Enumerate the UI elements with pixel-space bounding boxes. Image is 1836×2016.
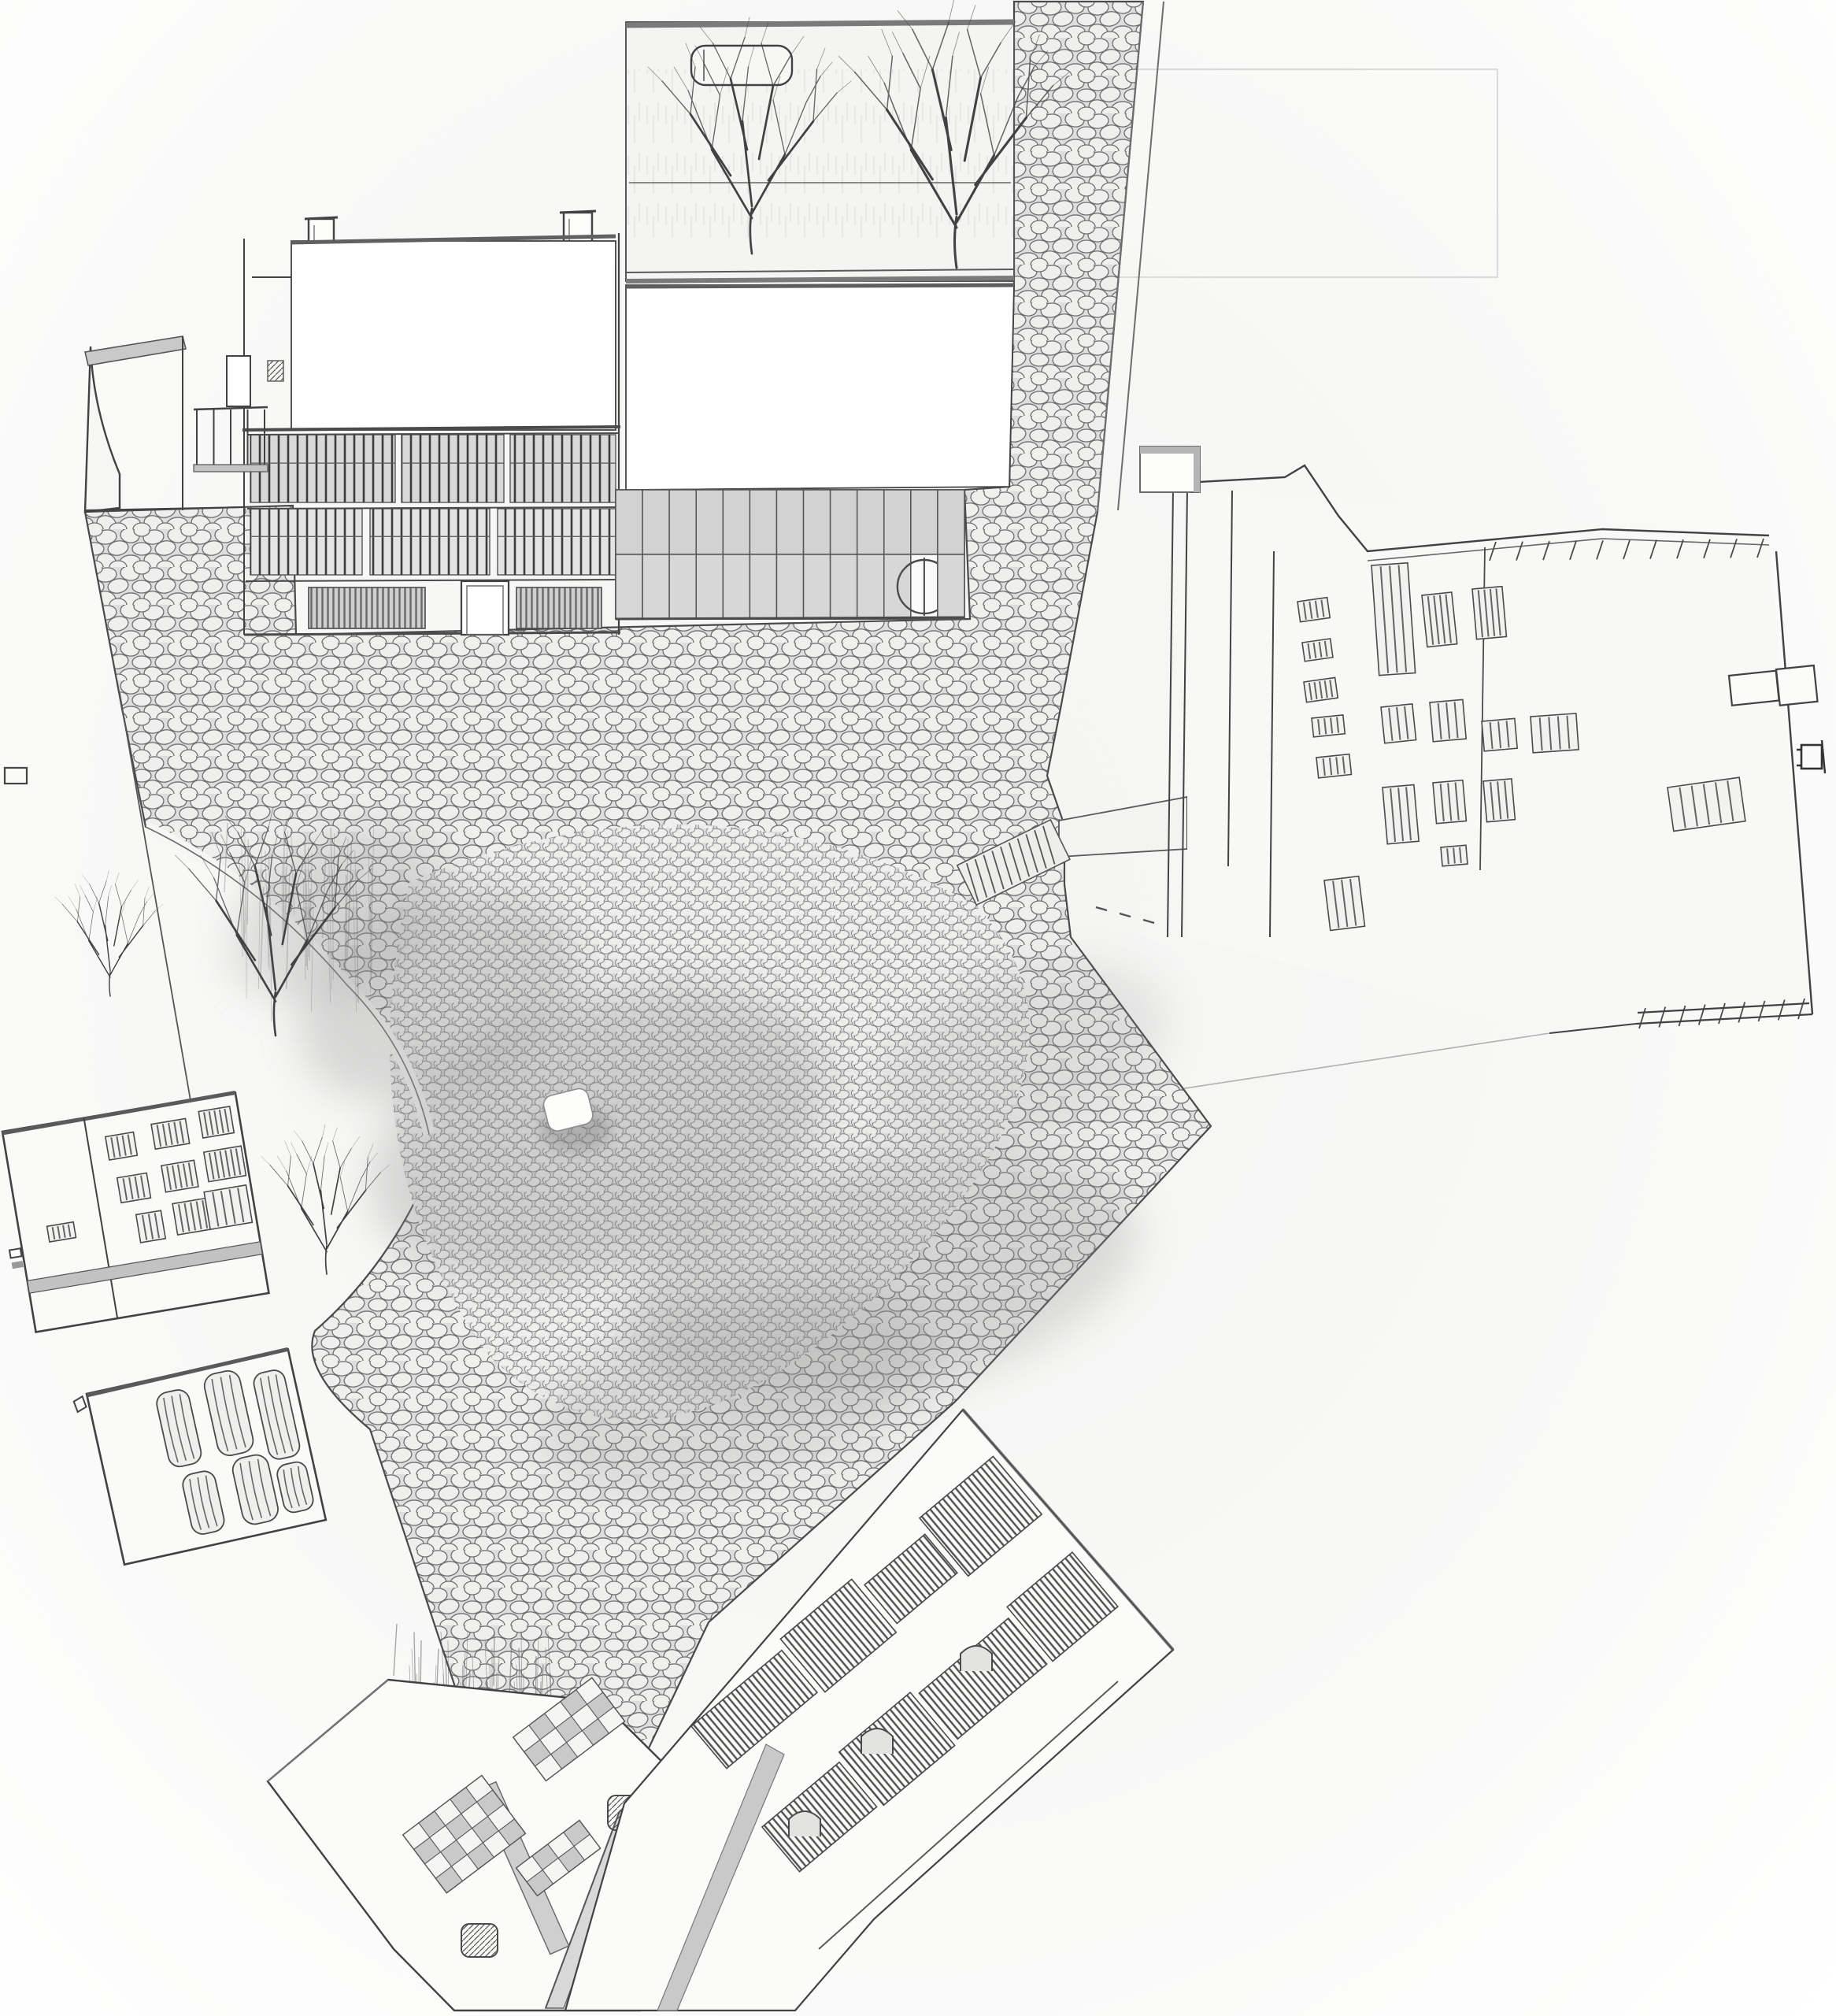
window-mullions xyxy=(370,509,490,575)
furniture-item xyxy=(1297,598,1330,622)
site-plan-svg: Village square site plan - aerial pencil… xyxy=(0,0,1836,2016)
bare-tree xyxy=(55,870,164,996)
porch-outer xyxy=(1776,665,1818,706)
porch-inner xyxy=(1729,671,1779,706)
furniture-outline xyxy=(1297,598,1330,622)
wall-line xyxy=(1182,488,1187,937)
furniture-outline xyxy=(1472,587,1506,639)
furniture-outline xyxy=(1531,713,1579,753)
glazed-hall-north: hall with white roof and glazed facade w… xyxy=(616,285,1014,619)
furniture-item xyxy=(1381,704,1416,743)
scribble-stroke xyxy=(309,889,310,961)
furniture-item xyxy=(105,1132,137,1161)
room-plan-group xyxy=(0,1092,268,1334)
furniture-outline xyxy=(117,1173,151,1203)
furniture-item xyxy=(1304,677,1338,702)
glass-panel xyxy=(831,490,857,554)
room-plan-upper-left: furnished room plan (upper left) xyxy=(0,1092,268,1334)
furniture-item xyxy=(1324,876,1364,931)
hall-roof-edge xyxy=(626,285,1014,287)
glass-panel xyxy=(938,490,964,554)
glass-panel xyxy=(696,554,723,619)
furniture-outline xyxy=(204,1185,252,1229)
window-mullions xyxy=(402,435,504,502)
glass-panel xyxy=(776,490,803,554)
annex-roof xyxy=(85,336,186,365)
furniture-item xyxy=(1531,713,1579,753)
window-mullions xyxy=(250,435,395,502)
garden-bottom-wall xyxy=(626,278,1014,281)
glass-panel xyxy=(857,554,884,619)
furniture-item xyxy=(136,1210,166,1243)
storage-hook xyxy=(73,1396,87,1413)
scribble-stroke xyxy=(494,1632,494,1686)
furniture-item xyxy=(204,1146,246,1181)
facade-base xyxy=(616,617,964,619)
entry-door xyxy=(461,581,509,635)
balcony-rail xyxy=(194,407,268,409)
glass-panel xyxy=(642,490,669,554)
furniture-outline xyxy=(105,1132,137,1161)
furniture-item xyxy=(198,1106,234,1138)
furniture-item xyxy=(1668,777,1745,831)
outdoor-chair xyxy=(1801,745,1822,769)
furniture-item xyxy=(1441,845,1468,866)
barn-arch-door xyxy=(961,1646,992,1671)
door-latch xyxy=(9,1248,21,1258)
furniture-item xyxy=(1430,699,1466,741)
edge-latch xyxy=(5,768,27,784)
glass-panel xyxy=(723,490,750,554)
scribble-stroke xyxy=(283,825,284,934)
furnished-hall-plan-east: furnished hall floor plan with hatched w… xyxy=(1140,447,1825,1033)
glass-panel xyxy=(938,554,964,619)
garden-top-wall xyxy=(626,22,1014,25)
furniture-item xyxy=(1312,715,1345,737)
annex-vent xyxy=(268,361,283,381)
furniture-item xyxy=(1302,639,1333,661)
furniture-item xyxy=(204,1185,252,1229)
barn-arch-door xyxy=(789,1811,820,1836)
glass-panel xyxy=(642,554,669,619)
glass-panel xyxy=(669,554,696,619)
paving-mark xyxy=(1120,913,1131,917)
furniture-outline xyxy=(1312,715,1345,737)
chimney-cap xyxy=(305,217,338,219)
glass-panel xyxy=(831,554,857,619)
storage-plan-lower-left: storage plan with elongated objects (low… xyxy=(72,1349,325,1567)
furniture-item xyxy=(1371,563,1416,676)
hall-roof xyxy=(626,285,1014,490)
paving-mark xyxy=(1143,920,1154,923)
chimney-cap xyxy=(560,211,596,213)
furniture-item xyxy=(161,1160,198,1191)
furniture-item xyxy=(1482,718,1517,751)
ground-window-grille xyxy=(309,587,425,628)
hall-floor xyxy=(1187,490,1812,1033)
stone-blob xyxy=(461,1924,498,1957)
glass-panel xyxy=(884,490,911,554)
furniture-outline xyxy=(1302,639,1333,661)
paving-mark xyxy=(1096,907,1107,910)
annex-wall xyxy=(85,346,120,512)
furniture-item xyxy=(1383,785,1419,844)
furniture-item xyxy=(1433,780,1466,824)
storage-plan-group xyxy=(72,1349,325,1567)
scribble-stroke xyxy=(394,1624,397,1676)
barn-arch-door xyxy=(861,1729,893,1754)
kiosk-roof-edge-side xyxy=(1194,447,1200,492)
roof-plane xyxy=(291,241,616,430)
ground-window-grille xyxy=(516,587,602,628)
glass-panel xyxy=(616,554,642,619)
door-latch-2 xyxy=(12,1261,24,1269)
window-mullions xyxy=(250,509,362,575)
window-mullions xyxy=(510,435,616,502)
furniture-outline xyxy=(1422,592,1457,647)
glass-panel xyxy=(804,490,831,554)
furniture-outline xyxy=(1316,754,1351,778)
glass-panel xyxy=(723,554,750,619)
glass-panel xyxy=(669,490,696,554)
glass-panel xyxy=(696,490,723,554)
furniture-item xyxy=(151,1118,190,1149)
glass-panel xyxy=(616,490,642,554)
kiosk-roof-edge xyxy=(1140,447,1200,454)
annex-window xyxy=(227,356,250,406)
ground-band-line xyxy=(246,580,619,581)
furniture-item xyxy=(1472,587,1506,639)
furniture-item xyxy=(1422,592,1457,647)
glass-panel xyxy=(804,554,831,619)
furniture-item xyxy=(1483,779,1515,822)
glass-panel xyxy=(750,490,776,554)
glass-panel xyxy=(776,554,803,619)
window-mullions xyxy=(498,509,616,575)
furniture-item xyxy=(117,1173,151,1203)
glass-panel xyxy=(750,554,776,619)
scribble-stroke xyxy=(372,861,372,980)
furniture-item xyxy=(1316,754,1351,778)
site-plan-drawing: Village square site plan - aerial pencil… xyxy=(0,0,1836,2016)
glass-panel xyxy=(857,490,884,554)
bare-tree xyxy=(261,1125,389,1274)
balcony-slab xyxy=(194,465,268,472)
wall-line xyxy=(1168,488,1173,937)
glass-panel xyxy=(911,490,938,554)
